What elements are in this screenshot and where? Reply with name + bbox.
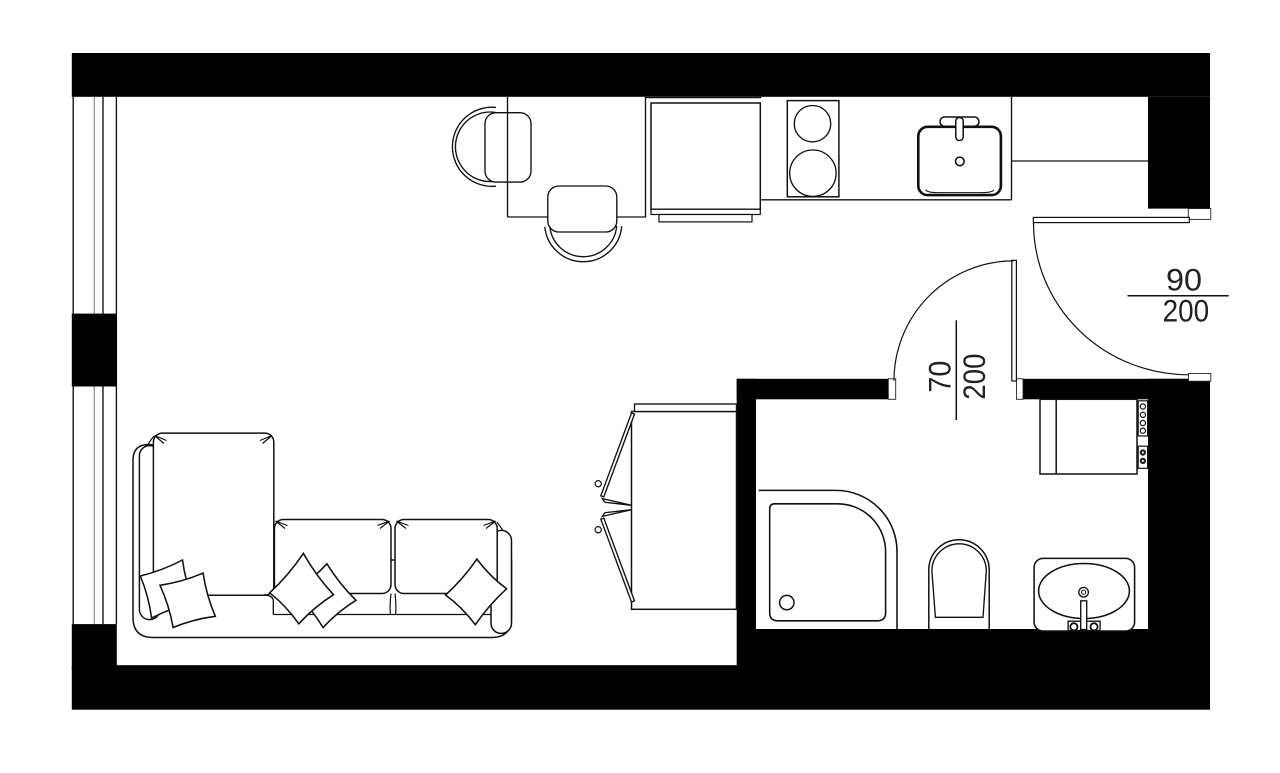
svg-text:70: 70: [922, 361, 958, 393]
svg-text:200: 200: [956, 354, 992, 400]
svg-text:200: 200: [1163, 293, 1210, 329]
